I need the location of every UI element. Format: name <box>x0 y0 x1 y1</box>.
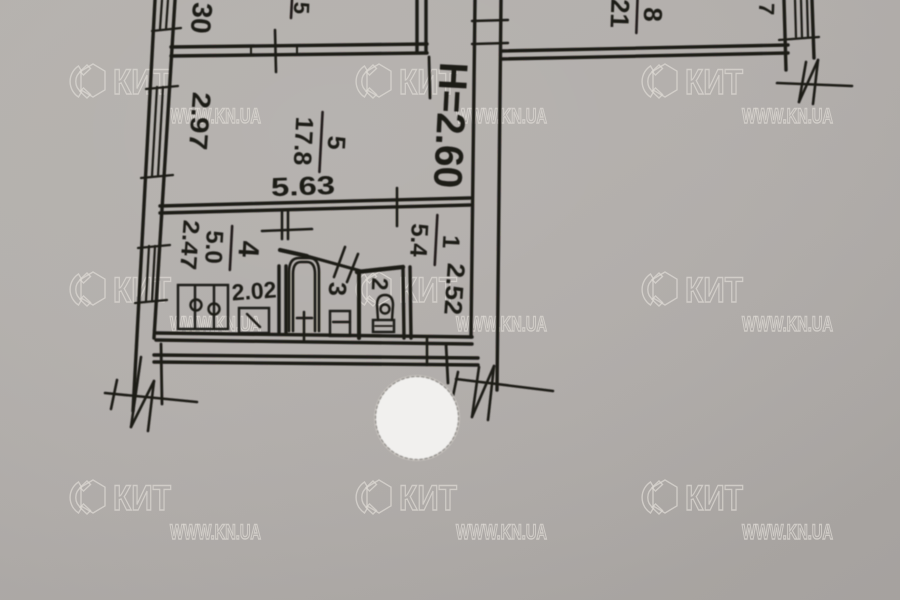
svg-text:5: 5 <box>322 135 351 150</box>
svg-text:2: 2 <box>367 277 393 291</box>
svg-text:Н=2.60: Н=2.60 <box>425 61 476 189</box>
svg-text:1: 1 <box>437 234 465 249</box>
svg-text:4: 4 <box>232 240 265 258</box>
svg-text:3: 3 <box>323 282 351 297</box>
svg-text:30: 30 <box>185 1 219 35</box>
svg-text:2.52: 2.52 <box>438 262 470 316</box>
svg-text:21: 21 <box>605 0 636 28</box>
svg-text:5.4: 5.4 <box>404 223 433 258</box>
svg-text:5.63: 5.63 <box>270 170 335 202</box>
svg-text:5.0: 5.0 <box>199 230 228 265</box>
svg-text:17.8: 17.8 <box>288 116 319 166</box>
svg-text:2.02: 2.02 <box>231 276 277 305</box>
svg-text:7: 7 <box>754 2 779 15</box>
svg-text:2.97: 2.97 <box>183 91 217 151</box>
svg-text:8: 8 <box>638 7 668 23</box>
